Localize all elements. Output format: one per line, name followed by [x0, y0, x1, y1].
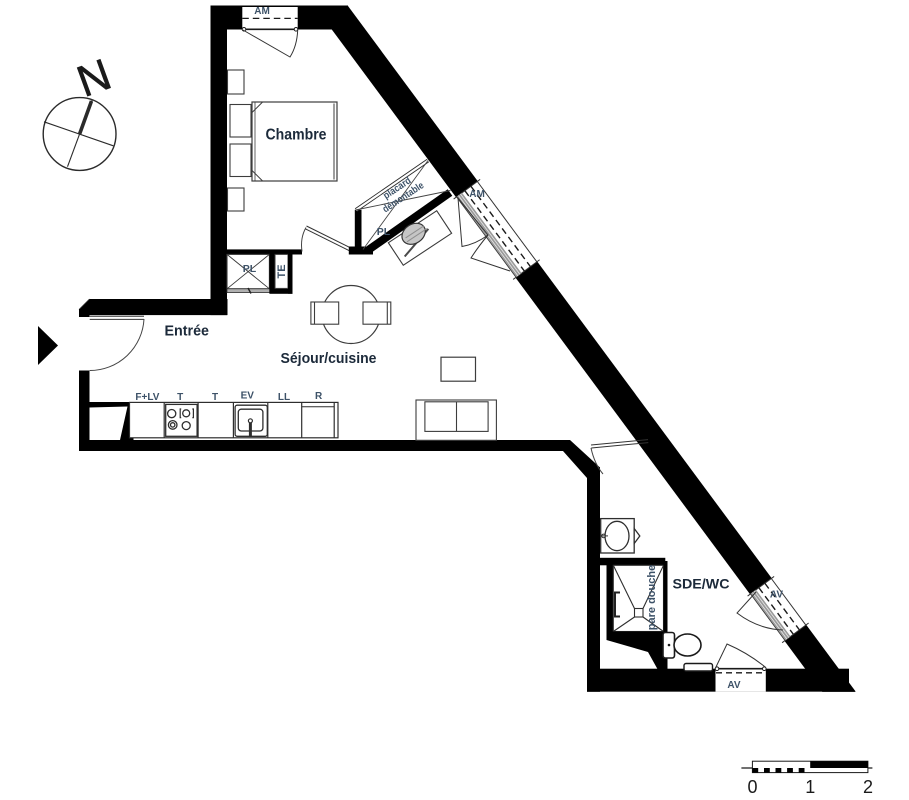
svg-text:0: 0: [747, 777, 757, 797]
svg-text:2: 2: [863, 777, 873, 797]
svg-text:LL: LL: [278, 392, 290, 403]
svg-text:T: T: [212, 392, 218, 403]
svg-text:T: T: [177, 392, 183, 403]
svg-text:PL: PL: [243, 263, 257, 275]
svg-text:AV: AV: [727, 680, 740, 691]
svg-text:Séjour/cuisine: Séjour/cuisine: [281, 350, 377, 367]
svg-text:AM: AM: [469, 189, 485, 200]
svg-text:Chambre: Chambre: [266, 127, 327, 144]
svg-text:EV: EV: [241, 391, 255, 402]
svg-text:Entrée: Entrée: [165, 324, 210, 340]
svg-text:F+LV: F+LV: [135, 392, 159, 403]
svg-text:PL: PL: [377, 226, 391, 238]
svg-text:pare douche: pare douche: [646, 565, 658, 630]
svg-text:AV: AV: [770, 590, 783, 601]
svg-text:R: R: [315, 391, 323, 402]
svg-text:SDE/WC: SDE/WC: [673, 577, 730, 592]
svg-text:1: 1: [805, 777, 815, 797]
svg-text:TE: TE: [276, 264, 288, 278]
svg-text:AM: AM: [254, 6, 270, 17]
